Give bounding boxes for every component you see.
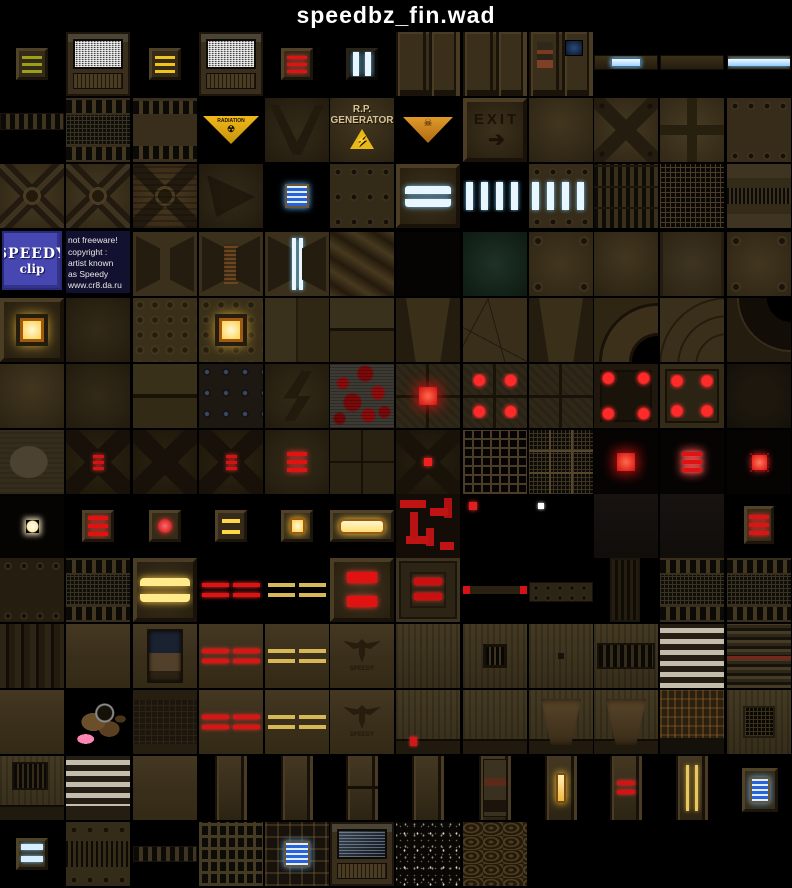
red-bars-light	[202, 583, 260, 597]
texture-red-bars-lamp	[265, 430, 329, 494]
texture-dark-elbow	[727, 298, 791, 362]
texture-striped-panel-base	[66, 756, 130, 820]
texture-vertical-split	[265, 298, 329, 362]
texture-metal-door	[396, 32, 460, 96]
texture-stone-red-center	[396, 364, 460, 428]
texture-slot-rows	[133, 98, 197, 162]
red-round-light	[158, 519, 172, 533]
machine-console	[147, 629, 183, 683]
white-light	[26, 520, 39, 533]
vent-grille	[483, 644, 507, 668]
yellow-bars-light	[222, 519, 240, 534]
red-end-lights	[463, 586, 527, 594]
texture-cross-plate	[660, 98, 724, 162]
texture-wall-machine	[133, 624, 197, 688]
texture-rivet-strip	[529, 582, 593, 602]
texture-yellow-bars-button	[215, 510, 247, 542]
texture-x-red-dot	[396, 430, 460, 494]
texture-wall-red-pair	[199, 624, 263, 688]
texture-wall-small-vent	[463, 624, 527, 688]
texture-rivet-bands	[330, 164, 394, 228]
screen-icon	[284, 841, 310, 867]
lamp-icon	[219, 318, 243, 342]
texture-dark-grid-screen	[265, 822, 329, 886]
texture-grid-panels	[529, 430, 593, 494]
texture-olive-bars-light	[16, 48, 48, 80]
vent-grille	[597, 643, 655, 669]
texture-yellow-lamp-button	[281, 510, 313, 542]
lightning-shape	[274, 371, 320, 421]
label: SPEEDY	[350, 731, 374, 739]
texture-blue-double-light	[396, 164, 460, 228]
rp-generator-sign-texture: R.P.GENERATOR	[330, 98, 394, 162]
hb3-icon	[22, 56, 42, 73]
red-bars-light	[682, 452, 702, 472]
label: GENERATOR	[331, 115, 394, 126]
yellow-bars-light	[140, 578, 190, 602]
label: not freeware!	[68, 235, 118, 246]
texture-bolted-plate	[529, 232, 593, 296]
texture-horizontal-split	[330, 298, 394, 362]
texture-plain-dark	[66, 364, 130, 428]
texture-computer-console-dark	[330, 822, 394, 886]
texture-machine-strip	[479, 756, 511, 820]
texture-red-glow-bars	[660, 430, 724, 494]
texture-blue-vbars-panel	[529, 164, 593, 228]
label: RADIATION	[217, 118, 244, 125]
console-icon	[70, 35, 126, 93]
exit-sign: EXIT	[467, 102, 523, 158]
texture-x-hub-plate	[66, 164, 130, 228]
blue-bars-light	[21, 844, 43, 864]
lamp-icon	[290, 518, 305, 534]
texture-black	[396, 232, 460, 296]
label: copyright :	[68, 247, 107, 258]
texture-warning-machine	[594, 690, 658, 754]
texture-horizontal-seam	[133, 364, 197, 428]
texture-blue-bars-button	[16, 838, 48, 870]
label: EXIT	[474, 112, 519, 128]
label: artist known	[68, 258, 113, 269]
texture-seamed-plate	[330, 430, 394, 494]
skull-warning-icon	[403, 117, 453, 143]
red-dot-light	[410, 737, 417, 746]
texture-computer-console	[66, 32, 130, 96]
label: SPEEDY	[350, 665, 374, 673]
texture-bolted-plate	[727, 232, 791, 296]
yellow-lines-light	[686, 765, 698, 811]
machine-console	[483, 759, 507, 817]
vent-grille	[743, 706, 775, 738]
texture-dark-subtle-square	[727, 364, 791, 428]
speedy-emblem-texture: SPEEDY	[330, 624, 394, 688]
texture-x-red-light	[66, 430, 130, 494]
texture-blurred-diagonal	[330, 232, 394, 296]
red-corner-lights	[600, 370, 652, 422]
texture-door-yellow-slot	[545, 756, 577, 820]
texture-gold-pair-strip	[265, 574, 329, 606]
texture-red-glow-square	[594, 430, 658, 494]
texture-yellow-bars-light	[149, 48, 181, 80]
texture-metal-door-posters	[529, 32, 593, 96]
texture-x-red-light	[199, 430, 263, 494]
label: R.P.	[353, 104, 371, 115]
exit-sign-texture: EXIT	[463, 98, 527, 162]
texture-wall-baseboard-red	[396, 690, 460, 754]
red-bars-light	[347, 572, 377, 608]
vent-grille	[558, 653, 564, 659]
texture-strip-plain	[660, 55, 724, 70]
texture-narrow-door-seam	[346, 756, 378, 820]
texture-mottled-patch	[0, 430, 64, 494]
texture-plain-brown	[594, 232, 658, 296]
texture-trapezoid-column	[529, 298, 593, 362]
texture-layered-strata	[727, 624, 791, 688]
texture-slot-grate	[660, 558, 724, 622]
eagle-emblem: SPEEDY	[330, 624, 394, 688]
console-icon	[203, 35, 259, 93]
vb2blue-icon	[292, 238, 303, 290]
texture-wall-vent-top	[0, 756, 64, 820]
texture-lightning-trace	[265, 364, 329, 428]
rp-generator-sign: R.P.GENERATOR	[330, 98, 394, 162]
texture-trapezoid-rust	[199, 232, 263, 296]
texture-tiny-red-dot	[469, 502, 477, 510]
texture-computer-console	[199, 32, 263, 96]
copyright-text: not freeware!copyright :artist knownas S…	[66, 231, 130, 293]
hb2blue-icon	[405, 186, 451, 207]
texture-blue-vbars-strip	[463, 180, 527, 212]
texture-fine-grid	[660, 164, 724, 228]
texture-red-bars-light	[281, 48, 313, 80]
texture-red-tick-light	[727, 430, 791, 494]
texture-red-circuit	[396, 494, 460, 558]
texture-tiny-white-dot	[538, 503, 544, 509]
texture-slot-strip	[133, 846, 197, 862]
radiation-sign: RADIATION	[203, 116, 259, 144]
speedy-emblem-texture: SPEEDY	[330, 690, 394, 754]
texture-yellow-glow-bars	[133, 558, 197, 622]
texture-narrow-door	[215, 756, 247, 820]
yellow-bars-light	[268, 649, 326, 663]
texture-plain-brown	[0, 364, 64, 428]
texture-slot-grate-rivets	[66, 558, 130, 622]
texture-pipe-elbow	[594, 298, 658, 362]
texture-v-groove	[265, 98, 329, 162]
texture-warning-machine	[529, 690, 593, 754]
texture-x-hub-plate	[0, 164, 64, 228]
texture-triangle-plate	[199, 164, 263, 228]
machine-console	[538, 699, 584, 745]
texture-door-yellow-lines	[676, 756, 708, 820]
texture-edged-plate	[660, 232, 724, 296]
hb3-icon	[287, 56, 307, 73]
texture-dark-green	[463, 232, 527, 296]
triangle-shape	[205, 173, 257, 219]
texture-framed-red-bars	[396, 558, 460, 622]
texture-wall-baseboard	[463, 690, 527, 754]
texture-metal-door	[463, 32, 527, 96]
texture-rivet-panel-dark	[0, 558, 64, 622]
texture-dark-panel	[594, 494, 658, 558]
texture-slot-grate	[66, 98, 130, 162]
eagle-emblem: SPEEDY	[330, 690, 394, 754]
texture-band-panel	[66, 822, 130, 886]
bluemid-icon	[611, 58, 641, 67]
texture-trapezoid-column	[396, 298, 460, 362]
texture-plain-wall	[66, 624, 130, 688]
texture-strip-blue-light	[594, 55, 658, 70]
texture-yellow-long-lamp	[330, 510, 394, 542]
speedy-clip-logo: SPEEDYclip	[2, 231, 62, 290]
texture-stone-cross	[529, 364, 593, 428]
texture-wall-vent	[529, 624, 593, 688]
vb4blue-icon	[466, 182, 524, 210]
lamp-icon	[339, 519, 385, 534]
texture-slot-strip	[0, 113, 64, 130]
lamp-icon	[20, 318, 44, 342]
screen-icon	[285, 184, 309, 208]
texture-red-pair-strip	[199, 574, 263, 606]
texture-vertical-stripes	[0, 624, 64, 688]
red-bars-light	[88, 516, 108, 536]
texture-trapezoid-blue-bars	[265, 232, 329, 296]
label: as Speedy	[68, 269, 108, 280]
texture-square-hole-grate	[463, 430, 527, 494]
red-corner-lights	[670, 374, 714, 418]
texture-narrow-door	[281, 756, 313, 820]
texture-plain-brown	[529, 98, 593, 162]
vent-grille	[12, 762, 48, 790]
texture-door-red-bars	[610, 756, 642, 820]
texture-wall-gold-pair	[265, 690, 329, 754]
radiation-sign-texture: RADIATION	[199, 114, 263, 146]
red-bars-light	[287, 452, 307, 472]
credits-text: not freeware!copyright :artist knownas S…	[66, 231, 130, 293]
texture-frame-red-corners	[660, 364, 724, 428]
texture-x-wood-plate	[133, 164, 197, 228]
red-light	[617, 453, 635, 471]
texture-bumped-plate	[133, 298, 197, 362]
texture-narrow-stripes	[610, 558, 640, 622]
texture-red-bars-small	[744, 506, 774, 544]
label: SPEEDY	[2, 246, 62, 262]
red-bars-light	[202, 715, 260, 729]
screen-icon	[750, 777, 770, 803]
texture-blue-screen-small	[742, 768, 778, 812]
texture-x-plate	[594, 98, 658, 162]
texture-circuit-board	[660, 690, 724, 754]
page-title: speedbz_fin.wad	[0, 2, 792, 28]
texture-red-round-button	[149, 510, 181, 542]
texture-grid-band-panel	[727, 164, 791, 228]
texture-blood-splatter	[330, 364, 394, 428]
speedy-clip-wordmark: SPEEDYclip	[4, 233, 60, 288]
chevron-shape	[270, 105, 324, 155]
bluefull-icon	[728, 59, 790, 66]
red-light	[93, 455, 104, 470]
texture-column-grate	[594, 164, 658, 228]
red-dot-light	[424, 458, 432, 466]
texture-red-stack-panel	[330, 558, 394, 622]
red-light	[419, 387, 437, 405]
texture-slot-grid-big	[199, 822, 263, 886]
texture-wall-gold-pair	[265, 624, 329, 688]
texture-slot-grate	[727, 558, 791, 622]
texture-narrow-door	[412, 756, 444, 820]
texture-plain-wall	[133, 756, 197, 820]
poison-sign-texture	[396, 114, 460, 146]
texture-rivet-dots	[199, 364, 263, 428]
posters-icon	[529, 32, 593, 96]
texture-wall-wide-vent	[594, 624, 658, 688]
texture-rippled-metal	[463, 822, 527, 886]
dog-sprite	[70, 698, 126, 748]
texture-dark-panel	[660, 494, 724, 558]
label: www.cr8.da.ru	[68, 280, 122, 291]
hb3-icon	[155, 56, 175, 73]
texture-blue-pause-light	[346, 48, 378, 80]
texture-blue-screen	[265, 164, 329, 228]
texture-yellow-lamp-panel	[0, 298, 64, 362]
texture-wall-red-pair	[199, 690, 263, 754]
red-bars-light	[414, 578, 442, 602]
texture-x-dark	[133, 430, 197, 494]
red-bars-light	[617, 781, 635, 795]
texture-atlas: speedbz_fin.wad RADIATIONR.P.GENERATOREX…	[0, 0, 792, 888]
texture-trapezoid-supports	[133, 232, 197, 296]
red-corner-lights	[472, 373, 518, 419]
texture-red-end-strip	[463, 585, 527, 595]
red-bars-light	[202, 649, 260, 663]
texture-wall-grid-vent	[727, 690, 791, 754]
yellow-bars-light	[268, 583, 326, 597]
texture-concentric-arcs	[660, 298, 724, 362]
texture-streaked-wall	[396, 624, 460, 688]
vb4blue-icon	[532, 182, 590, 210]
texture-red-bars-button	[82, 510, 114, 542]
yellow-bars-light	[268, 715, 326, 729]
texture-dark-frame-red-corners	[594, 364, 658, 428]
red-light	[226, 455, 237, 470]
texture-strip-blue-line	[727, 55, 791, 70]
machine-console	[603, 699, 649, 745]
texture-stone-red-corners	[463, 364, 527, 428]
texture-dark-grid-panel	[133, 690, 197, 754]
yellow-slot-light	[556, 773, 566, 803]
pause-icon	[350, 52, 374, 76]
texture-yellow-lamp-b:umps	[199, 298, 263, 362]
dog-creature	[70, 698, 126, 748]
texture-plain-dark	[66, 298, 130, 362]
texture-faceted-arc	[463, 298, 527, 362]
red-bars-light	[749, 515, 769, 535]
console-icon	[334, 825, 390, 883]
rustpatch-icon	[224, 244, 238, 284]
texture-plain-wall	[0, 690, 64, 754]
texture-rivet-panel	[727, 98, 791, 162]
red-light	[752, 455, 767, 470]
texture-striped-panel	[660, 624, 724, 688]
texture-starfield	[396, 822, 460, 886]
texture-white-star-light	[0, 494, 64, 558]
label: clip	[20, 262, 45, 276]
